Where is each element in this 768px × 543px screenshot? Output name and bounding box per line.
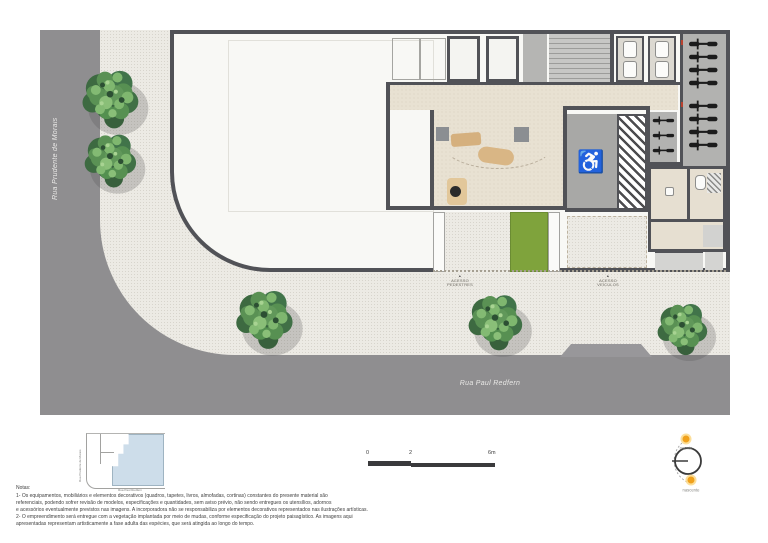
bicycle-icon xyxy=(685,139,723,151)
compass: poente nascente xyxy=(648,425,753,515)
accessible-parking-space: ♿ xyxy=(565,114,617,210)
street-name-bottom: Rua Paul Redfern xyxy=(430,380,550,387)
tree xyxy=(645,290,719,364)
sunrise-label: nascente xyxy=(683,488,701,493)
service-slab xyxy=(655,250,703,270)
service-room xyxy=(392,38,420,80)
elevator-shaft xyxy=(447,36,480,82)
notes-line: 1- Os equipamentos, mobiliários e elemen… xyxy=(16,493,446,500)
street-name-left: Rua Prudente de Morais xyxy=(52,90,59,200)
bicycle-icon xyxy=(685,38,723,50)
bicycle-icon xyxy=(685,51,723,63)
hatched-no-parking-strip xyxy=(617,114,647,210)
notes-line: apresentadas representam artisticamente … xyxy=(16,521,446,528)
bicycle-icon xyxy=(652,131,676,140)
vehicle-court xyxy=(567,216,647,268)
entry-court xyxy=(445,212,510,272)
bicycle-icon xyxy=(685,77,723,89)
rack-mark xyxy=(681,40,683,45)
pilaster xyxy=(433,212,445,272)
notes-line: 2- O empreendimento será entregue com a … xyxy=(16,514,446,521)
key-plan-line xyxy=(100,452,114,453)
service-room xyxy=(420,38,446,80)
wall xyxy=(610,34,614,84)
bicycle-icon xyxy=(652,116,676,125)
vestibule xyxy=(523,34,547,84)
wall xyxy=(386,82,680,85)
wall xyxy=(430,110,434,210)
site-plan-page: ♿ ▲ ACESSO PEDESTRES ▲ A xyxy=(0,0,768,543)
wall xyxy=(386,84,390,210)
key-plan-street-left: Rua Prudente de Morais xyxy=(78,438,82,482)
bicycle-icon xyxy=(685,126,723,138)
bicycle-icon xyxy=(652,146,676,155)
planting-bed xyxy=(510,212,548,272)
key-plan: Rua Prudente de Morais Rua Paul Redfern xyxy=(55,428,167,492)
office-chair xyxy=(450,186,461,197)
vehicle-access-label: ▲ ACESSO VEÍCULOS xyxy=(586,274,630,288)
tree xyxy=(68,55,152,205)
toilet-stall xyxy=(616,36,644,82)
wall xyxy=(565,208,650,212)
scale-tick: 2 xyxy=(409,450,412,456)
service-rooms xyxy=(648,166,726,252)
sunset-label: poente xyxy=(680,446,693,451)
sunset-sun-icon xyxy=(683,436,690,443)
rack-mark xyxy=(681,102,683,107)
driveway-curb-cut xyxy=(560,344,652,357)
notes-line: e acessórios eventualmente previstos nas… xyxy=(16,507,446,514)
bicycle-icon xyxy=(685,100,723,112)
notes-block: Notas: 1- Os equipamentos, mobiliários e… xyxy=(16,485,446,528)
property-line xyxy=(433,270,726,272)
wall xyxy=(563,106,650,110)
ceiling-projection-curve xyxy=(440,112,557,169)
toilet-stall xyxy=(648,36,676,82)
tree xyxy=(455,280,535,360)
notes-line: referenciais, podendo sofrer revisão de … xyxy=(16,500,446,507)
scale-bar: 0 2 6m xyxy=(360,450,510,472)
stairs xyxy=(549,34,610,84)
scale-bar-segment xyxy=(368,461,411,466)
pilaster xyxy=(548,212,560,272)
elevator-shaft xyxy=(486,36,519,82)
notes-title: Notas: xyxy=(16,485,446,492)
scale-bar-segment xyxy=(411,463,495,467)
service-slab xyxy=(705,252,723,270)
sunrise-sun-icon xyxy=(688,477,695,484)
scale-tick: 6m xyxy=(488,450,496,456)
wall xyxy=(430,206,567,210)
scale-tick: 0 xyxy=(366,450,369,456)
tree xyxy=(222,275,306,359)
bicycle-icon xyxy=(685,113,723,125)
wall xyxy=(386,206,434,210)
wheelchair-icon: ♿ xyxy=(565,114,617,210)
wall xyxy=(563,110,567,210)
bicycle-icon xyxy=(685,64,723,76)
key-plan-line xyxy=(100,434,101,464)
